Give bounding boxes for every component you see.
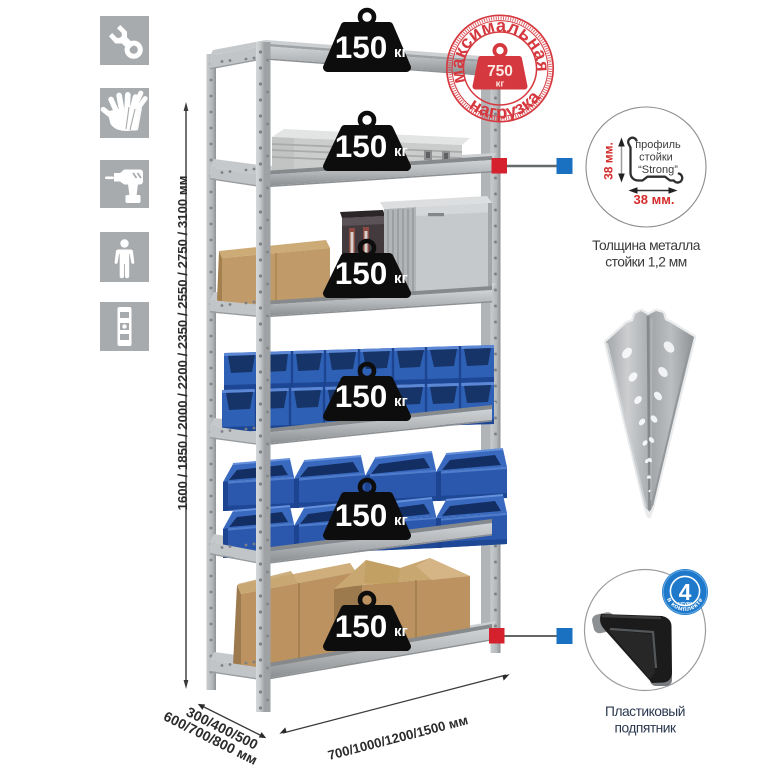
- svg-text:38 мм.: 38 мм.: [602, 142, 616, 180]
- svg-text:кг: кг: [394, 512, 408, 529]
- svg-text:кг: кг: [394, 44, 408, 61]
- svg-text:700/1000/1200/1500 мм: 700/1000/1200/1500 мм: [326, 712, 469, 763]
- svg-text:кг: кг: [394, 143, 408, 160]
- svg-text:Толщина металла: Толщина металла: [592, 238, 701, 253]
- svg-text:штуки: штуки: [678, 601, 692, 606]
- svg-text:нагрузка: нагрузка: [464, 84, 547, 128]
- svg-text:“Strong”: “Strong”: [638, 164, 678, 176]
- svg-text:150: 150: [335, 29, 388, 65]
- svg-text:1600 / 1850 / 2000 / 2200 / 23: 1600 / 1850 / 2000 / 2200 / 2350 / 2550 …: [175, 176, 190, 511]
- svg-text:750: 750: [487, 63, 513, 80]
- svg-text:150: 150: [335, 128, 388, 164]
- svg-text:38 мм.: 38 мм.: [634, 192, 675, 207]
- svg-text:150: 150: [335, 255, 388, 291]
- svg-text:профиль: профиль: [635, 139, 681, 151]
- svg-text:кг: кг: [496, 79, 505, 90]
- svg-text:кг: кг: [394, 393, 408, 410]
- svg-text:150: 150: [335, 378, 388, 414]
- svg-text:стойки: стойки: [639, 152, 673, 164]
- svg-text:150: 150: [335, 497, 388, 533]
- svg-text:150: 150: [335, 608, 388, 644]
- svg-text:кг: кг: [394, 270, 408, 287]
- svg-text:стойки 1,2 мм: стойки 1,2 мм: [605, 255, 687, 270]
- svg-text:подпятник: подпятник: [614, 721, 676, 736]
- svg-text:кг: кг: [394, 623, 408, 640]
- svg-text:Пластиковый: Пластиковый: [605, 704, 685, 719]
